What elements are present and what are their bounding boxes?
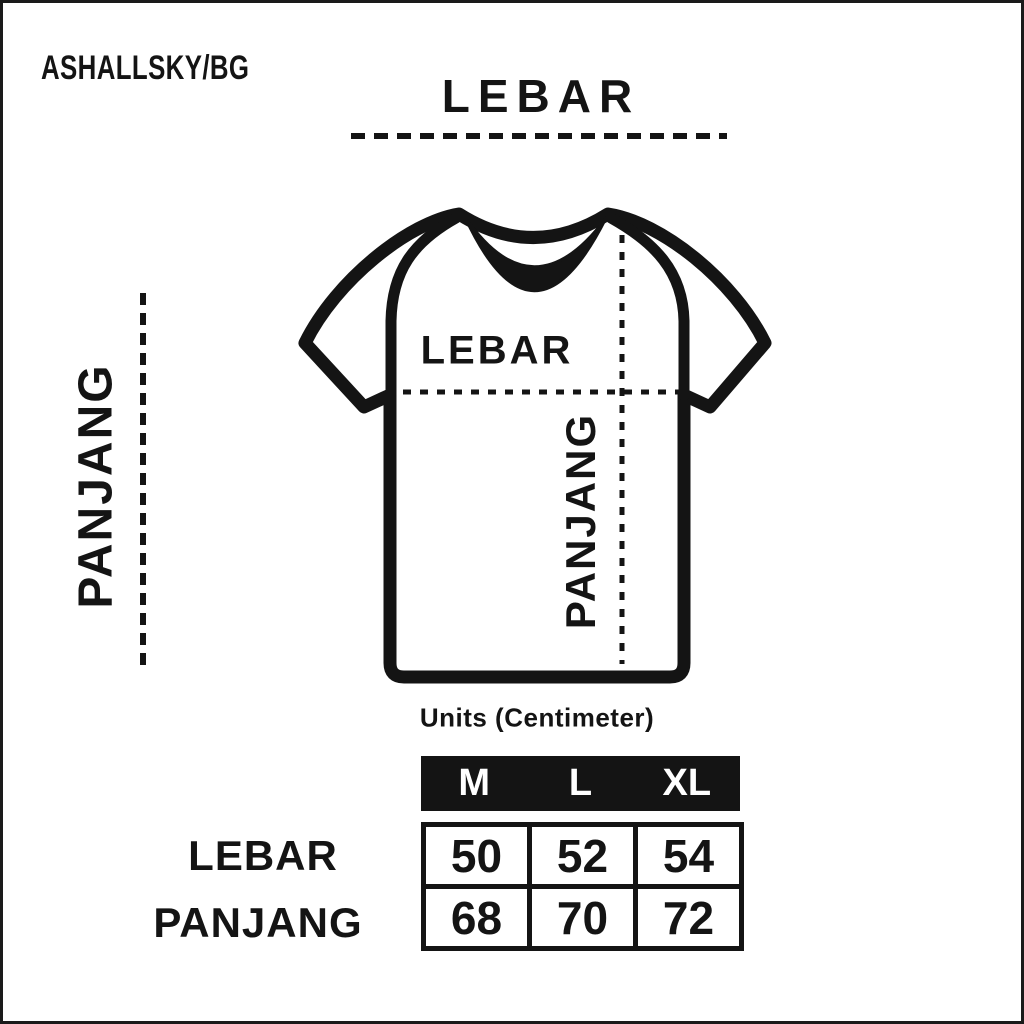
row-label-panjang: PANJANG [153,899,362,947]
cell-panjang-xl: 72 [636,887,742,949]
cell-lebar-l: 52 [530,825,636,887]
shirt-width-label: LEBAR [421,329,574,374]
side-length-measure-line [140,293,146,671]
top-width-title: LEBAR [434,69,640,123]
cell-lebar-xl: 54 [636,825,742,887]
row-label-lebar: LEBAR [188,832,338,880]
size-table: 50 52 54 68 70 72 [421,822,744,951]
brand-label: ASHALLSKY/BG [41,49,249,88]
tshirt-armhole-seam-right [611,218,684,395]
tshirt-body-outline [305,214,765,677]
cell-panjang-l: 70 [530,887,636,949]
units-label: Units (Centimeter) [420,703,654,734]
shirt-length-label: PANJANG [557,413,605,629]
size-column-xl: XL [634,756,740,811]
table-row-panjang: 68 70 72 [424,887,742,949]
size-table-header: M L XL [421,756,740,811]
table-row-lebar: 50 52 54 [424,825,742,887]
size-column-l: L [527,756,633,811]
tshirt-collar [465,217,606,291]
size-column-m: M [421,756,527,811]
top-width-measure-line [351,133,727,139]
cell-panjang-m: 68 [424,887,530,949]
side-length-title: PANJANG [69,363,124,608]
size-chart-canvas: ASHALLSKY/BG LEBAR PANJANG LEBAR PANJANG… [0,0,1024,1024]
cell-lebar-m: 50 [424,825,530,887]
